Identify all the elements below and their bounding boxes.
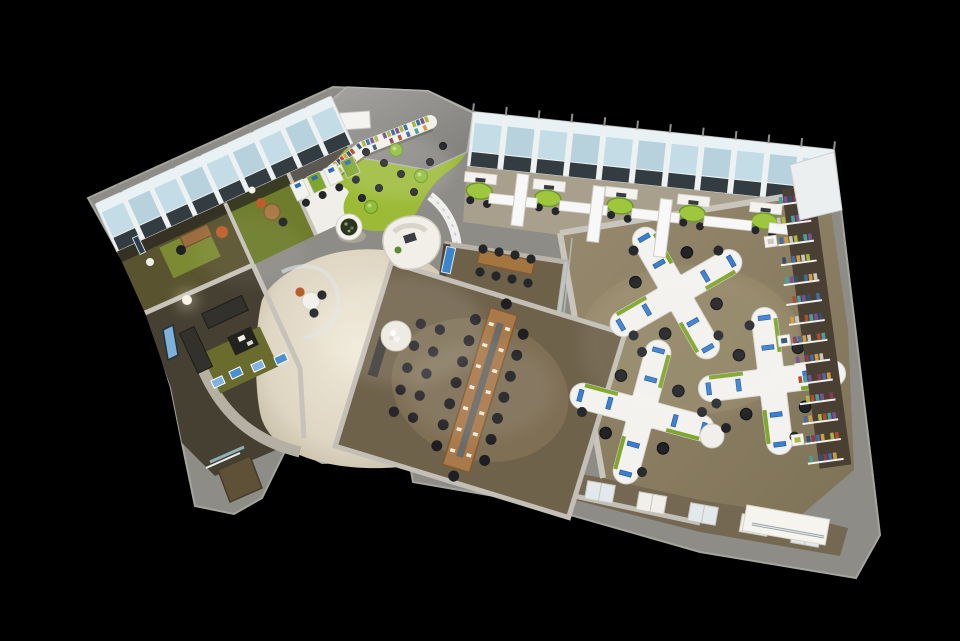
workstation-monitor [770,412,783,420]
library-stool [358,194,365,201]
window-inner-shadow [602,166,630,183]
mullion-tick [604,117,605,126]
window-pane [603,137,633,168]
display-cover [767,239,774,245]
table-highlight [368,204,372,208]
corner-room [790,152,842,220]
library-green-table [365,201,378,214]
mullion-tick [670,124,671,133]
mullion-tick [703,128,704,137]
office-floorplan-render [0,0,960,641]
workstation-monitor [774,441,787,449]
window-inner-shadow [503,156,531,173]
window-inner-shadow [536,159,564,176]
mullion-tick [539,110,540,119]
window-pane [669,144,699,175]
window-pane [570,133,600,164]
mullion-tick [834,141,835,150]
window-inner-shadow [667,173,695,190]
window-inner-shadow [733,180,761,197]
mullion-tick [506,107,507,116]
window-pane [472,123,502,154]
floorplan-canvas [0,0,960,641]
window-pane [505,127,535,158]
window-inner-shadow [700,176,728,193]
mullion-tick [571,114,572,123]
window-inner-shadow [634,169,662,186]
window-pane [734,151,764,182]
mullion-tick [736,131,737,140]
reception-kiosk [383,216,440,269]
mullion-tick [768,134,769,143]
mullion-tick [801,138,802,147]
mullion-tick [473,103,474,112]
window-pane [702,147,732,178]
display-cover [794,437,801,443]
window-pane [636,140,666,171]
window-pane [538,130,568,161]
mullion-tick [637,121,638,130]
window-inner-shadow [569,162,597,179]
window-inner-shadow [470,152,498,169]
